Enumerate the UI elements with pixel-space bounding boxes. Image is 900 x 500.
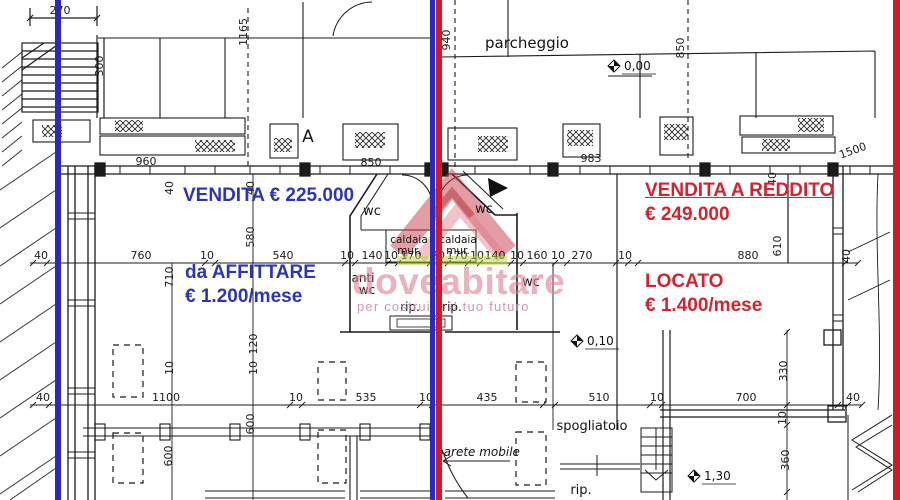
right-boundary-line xyxy=(893,0,900,500)
dimension-label: 40 xyxy=(34,249,48,262)
annotation-left-sale: VENDITA € 225.000 xyxy=(183,184,354,208)
right-sale-line2: € 249.000 xyxy=(645,203,834,227)
level-value: 0,10 xyxy=(587,334,614,348)
site-hatching-left xyxy=(0,52,56,500)
dimension-label: 850 xyxy=(674,38,687,59)
bottom-walls xyxy=(83,345,555,500)
annotation-left-rent: da AFFITTARE € 1.200/mese xyxy=(185,261,316,309)
dimension-label: 10 xyxy=(650,391,664,404)
dimension-label: 360 xyxy=(779,450,792,471)
annotation-right-rent: LOCATO € 1.400/mese xyxy=(645,270,762,318)
dimension-label: 1165 xyxy=(237,18,250,46)
watermark-brand: doveabitare xyxy=(352,261,565,303)
dimension-label: 610 xyxy=(771,236,784,257)
dimension-label: 10 xyxy=(247,361,260,375)
dimension-label: 270 xyxy=(572,249,593,262)
dimension-label: 40 xyxy=(36,391,50,404)
level-marker: 0,00 xyxy=(608,59,656,74)
dimension-label: 880 xyxy=(738,249,759,262)
watermark-tagline: per costruire il tuo futuro xyxy=(357,299,530,314)
level-marker: 1,30 xyxy=(688,469,736,484)
dimension-label: 600 xyxy=(162,446,175,467)
dimension-label: 300 xyxy=(93,56,106,77)
room-label: parcheggio xyxy=(485,34,569,52)
dimension-label: 435 xyxy=(477,391,498,404)
dimension-label: 40 xyxy=(163,181,176,195)
room-label: spogliatoio xyxy=(556,419,627,434)
left-rent-line1: da AFFITTARE xyxy=(185,261,316,285)
dimension-label: 850 xyxy=(361,156,382,169)
dimension-label: 710 xyxy=(163,267,176,288)
right-rent-line2: € 1.400/mese xyxy=(645,294,762,318)
center-divider-red-line xyxy=(436,0,442,500)
dimension-label: 510 xyxy=(589,391,610,404)
dimension-label: 700 xyxy=(736,391,757,404)
left-rent-line2: € 1.200/mese xyxy=(185,285,316,309)
dimension-label: 535 xyxy=(356,391,377,404)
dimension-label: 960 xyxy=(136,155,157,168)
stairs-top-left xyxy=(22,6,104,118)
left-boundary-line xyxy=(55,0,61,500)
level-value: 1,30 xyxy=(704,469,731,483)
plan-labels-layer: 2703001165940850960850983150040760105401… xyxy=(34,4,868,498)
dimension-label: 760 xyxy=(131,249,152,262)
room-label: parete mobile xyxy=(435,445,520,459)
room-label: A xyxy=(302,127,314,147)
floorplan-drawing: 2703001165940850960850983150040760105401… xyxy=(0,0,900,500)
dimension-label: 40 xyxy=(846,391,860,404)
room-label: wc xyxy=(475,202,493,217)
dimension-label: 10 xyxy=(618,249,632,262)
level-marker: 0,10 xyxy=(571,334,619,349)
dimension-label: 40 xyxy=(840,249,853,263)
dimension-label: 120 xyxy=(247,334,260,355)
dimension-label: 330 xyxy=(777,361,790,382)
dimension-label: 10 xyxy=(776,411,789,425)
dimension-label: 983 xyxy=(581,152,602,165)
right-sale-line1: VENDITA A REDDITO xyxy=(645,179,834,203)
dimension-label: 580 xyxy=(244,227,257,248)
floorplan-page: 2703001165940850960850983150040760105401… xyxy=(0,0,900,500)
dimension-label: 600 xyxy=(244,414,257,435)
dimension-label: 10 xyxy=(163,361,176,375)
right-rent-line1: LOCATO xyxy=(645,270,762,294)
room-label: rip. xyxy=(570,483,591,498)
dimension-label: 1500 xyxy=(837,140,868,162)
room-label: wc xyxy=(363,204,381,219)
dimension-label: 1100 xyxy=(152,391,180,404)
dimension-label: 10 xyxy=(289,391,303,404)
annotation-right-sale: VENDITA A REDDITO € 249.000 xyxy=(645,179,834,227)
center-divider-blue-line xyxy=(430,0,435,500)
level-value: 0,00 xyxy=(624,59,651,73)
